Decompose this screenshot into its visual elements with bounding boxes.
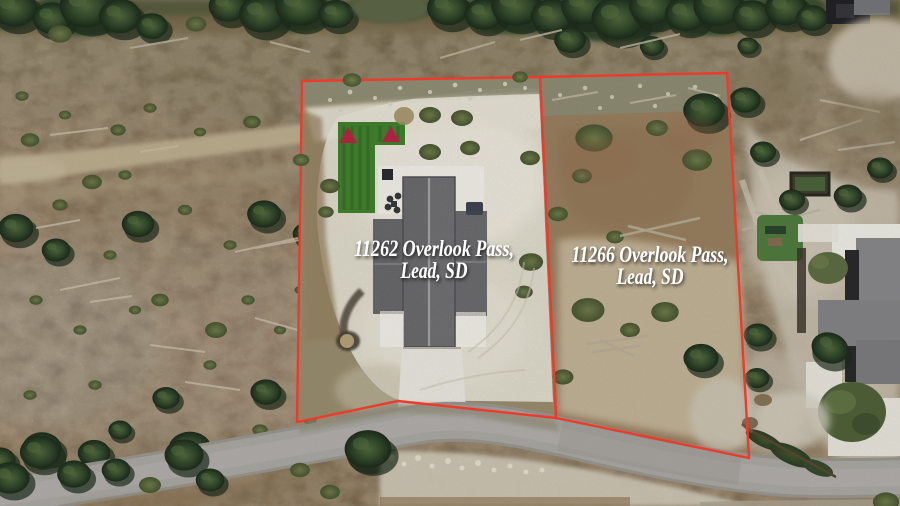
svg-text:Lead, SD: Lead, SD <box>616 264 684 289</box>
svg-text:Lead, SD: Lead, SD <box>400 258 468 283</box>
